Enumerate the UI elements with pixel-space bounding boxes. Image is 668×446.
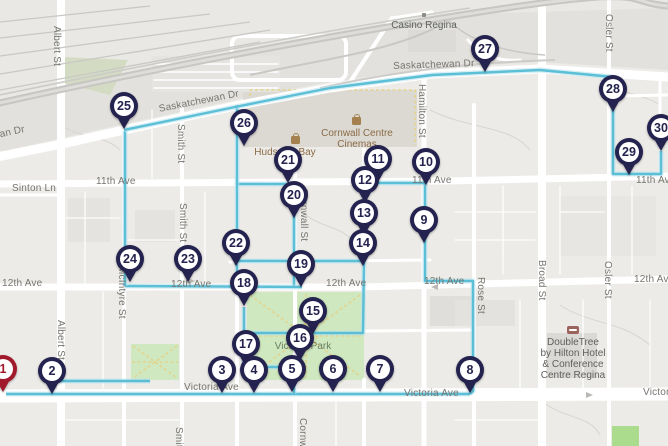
shopping-bag-icon-cornwall-centre [352, 117, 361, 125]
marker-number: 22 [222, 229, 250, 257]
poi-label-line: by Hilton Hotel [503, 348, 643, 359]
marker-number: 9 [410, 206, 438, 234]
tour-marker-19[interactable]: 19 [287, 250, 315, 288]
marker-number: 2 [38, 357, 66, 385]
marker-number: 4 [240, 356, 268, 384]
marker-number: 5 [278, 355, 306, 383]
poi-label-line: DoubleTree [503, 337, 643, 348]
street-label-smith-st-top: Smith St [175, 124, 186, 163]
street-label-osler-st-bottom: Osler St [602, 261, 613, 299]
marker-number: 17 [232, 330, 260, 358]
tour-marker-26[interactable]: 26 [230, 109, 258, 147]
street-label-broad-st: Broad St [536, 260, 547, 301]
marker-number: 18 [230, 269, 258, 297]
marker-number: 20 [280, 181, 308, 209]
poi-label-line: Casino Regina [354, 20, 494, 31]
street-label-11th-ave-right: 11th Ave [636, 175, 668, 186]
marker-number: 10 [412, 148, 440, 176]
marker-number: 16 [286, 324, 314, 352]
tour-marker-14[interactable]: 14 [349, 229, 377, 267]
street-label-12th-ave-mid: 12th Ave [326, 278, 366, 289]
street-label-12th-ave-far-right: 12th Ave [634, 274, 668, 285]
poi-label-line: Cornwall Centre [287, 128, 427, 139]
marker-number: 8 [456, 356, 484, 384]
marker-number: 29 [615, 138, 643, 166]
street-label-12th-ave-right: 12th Ave [424, 276, 464, 287]
tour-marker-29[interactable]: 29 [615, 138, 643, 176]
marker-number: 12 [351, 166, 379, 194]
tour-marker-2[interactable]: 2 [38, 357, 66, 395]
marker-number: 25 [110, 92, 138, 120]
street-label-rose-st: Rose St [475, 277, 486, 314]
tour-marker-7[interactable]: 7 [366, 355, 394, 393]
marker-number: 14 [349, 229, 377, 257]
poi-label-line: Centre Regina [503, 370, 643, 381]
tour-marker-10[interactable]: 10 [412, 148, 440, 186]
marker-number: 28 [599, 75, 627, 103]
tour-marker-23[interactable]: 23 [174, 245, 202, 283]
tour-marker-6[interactable]: 6 [319, 355, 347, 393]
tour-marker-1[interactable]: 1 [0, 355, 17, 393]
tour-marker-3[interactable]: 3 [208, 356, 236, 394]
tour-marker-21[interactable]: 21 [274, 146, 302, 184]
tour-marker-27[interactable]: 27 [471, 35, 499, 73]
street-label-smith-st-mid: Smith St [177, 203, 188, 242]
poi-dot-casino [422, 13, 426, 17]
tour-marker-4[interactable]: 4 [240, 356, 268, 394]
marker-number: 7 [366, 355, 394, 383]
shopping-bag-icon-hudsons-bay [291, 136, 300, 144]
tour-marker-18[interactable]: 18 [230, 269, 258, 307]
poi-label-doubletree-hotel: DoubleTreeby Hilton Hotel& ConferenceCen… [503, 337, 643, 381]
marker-number: 21 [274, 146, 302, 174]
tour-marker-9[interactable]: 9 [410, 206, 438, 244]
marker-number: 30 [647, 114, 668, 142]
marker-number: 3 [208, 356, 236, 384]
route-segment [125, 286, 302, 287]
street-label-albert-st-bottom: Albert St [55, 320, 66, 360]
street-label-victoria-ave-right: Victoria Ave [643, 387, 668, 398]
map-canvas[interactable]: Albert StAlbert StMcIntyre StSmith StSmi… [0, 0, 668, 446]
tour-marker-24[interactable]: 24 [116, 245, 144, 283]
street-label-11th-ave-left: 11th Ave [96, 176, 136, 187]
street-label-12th-ave-far-left: 12th Ave [2, 278, 42, 289]
marker-number: 23 [174, 245, 202, 273]
tour-marker-8[interactable]: 8 [456, 356, 484, 394]
tour-marker-25[interactable]: 25 [110, 92, 138, 130]
marker-number: 19 [287, 250, 315, 278]
poi-label-casino-regina: Casino Regina [354, 20, 494, 31]
tour-marker-30[interactable]: 30 [647, 114, 668, 152]
tour-marker-22[interactable]: 22 [222, 229, 250, 267]
tour-marker-5[interactable]: 5 [278, 355, 306, 393]
marker-number: 27 [471, 35, 499, 63]
tour-marker-20[interactable]: 20 [280, 181, 308, 219]
poi-label-line: & Conference [503, 359, 643, 370]
marker-number: 13 [350, 199, 378, 227]
street-label-albert-st-top: Albert St [51, 26, 62, 66]
marker-number: 1 [0, 355, 17, 383]
marker-number: 6 [319, 355, 347, 383]
marker-number: 15 [299, 297, 327, 325]
street-label-sinton-ln: Sinton Ln [12, 183, 56, 194]
marker-number: 24 [116, 245, 144, 273]
street-label-cornwall-st-bottom: Cornwall St [297, 418, 308, 446]
street-label-victoria-ave-mid: Victoria Ave [404, 388, 459, 399]
tour-marker-28[interactable]: 28 [599, 75, 627, 113]
marker-number: 26 [230, 109, 258, 137]
street-label-osler-st-top: Osler St [603, 14, 614, 52]
street-label-smith-st-cut: Smith St [173, 427, 184, 446]
bed-icon-doubletree [567, 326, 579, 334]
